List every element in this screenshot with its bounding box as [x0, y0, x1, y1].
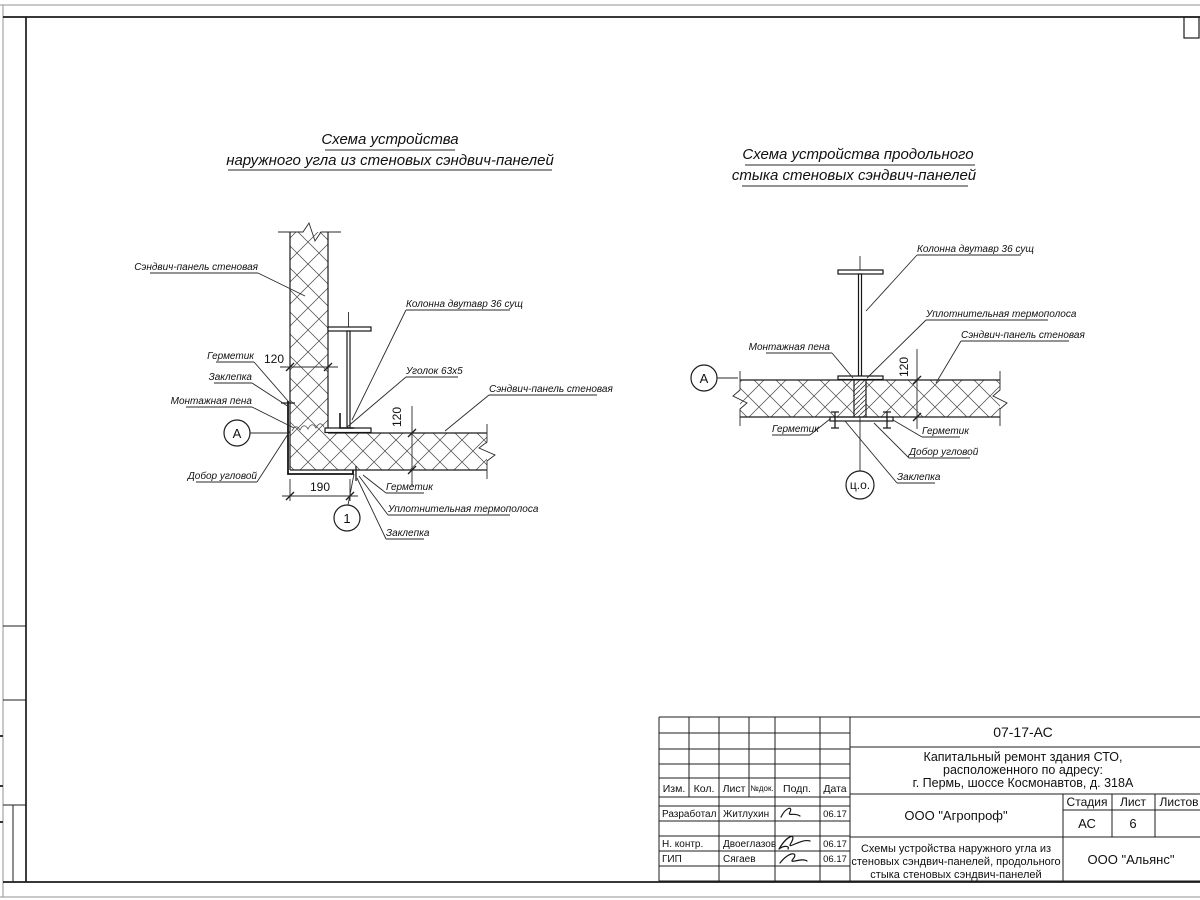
document-number: 07-17-АС	[993, 724, 1053, 740]
right-diagram-title-line1: Схема устройства продольного	[742, 146, 973, 163]
row-name-ncontrol: Двоеглазов	[723, 839, 776, 850]
drawing-name-line2: стеновых сэндвич-панелей, продольного	[851, 856, 1060, 868]
row-date-gip: 06.17	[823, 854, 847, 865]
center-axis-marker: ц.о.	[850, 478, 870, 492]
sandwich-panel-run	[740, 380, 1000, 417]
col-header-ndok: №док.	[750, 784, 773, 793]
label-rivet: Заклепка	[897, 472, 941, 483]
label-angle: Уголок 63х5	[405, 366, 463, 377]
drawing-name-line3: стыка стеновых сэндвич-панелей	[870, 869, 1041, 881]
node-marker-a: А	[700, 371, 709, 386]
label-sealant-bottom: Герметик	[386, 482, 434, 493]
dim-120-vertical: 120	[897, 357, 911, 377]
i-beam-column	[325, 312, 371, 433]
row-date-ncontrol: 06.17	[823, 839, 847, 850]
label-rivet-top: Заклепка	[209, 372, 253, 383]
left-diagram: Схема устройства наружного угла из стено…	[134, 131, 613, 539]
col-header-kol: Кол.	[694, 783, 715, 795]
node-marker-a: А	[233, 426, 242, 441]
dim-120-horizontal: 120	[264, 352, 284, 366]
label-thermo-strip: Уплотнительная термополоса	[925, 309, 1077, 320]
label-mounting-foam: Монтажная пена	[171, 396, 253, 407]
label-thermo-strip: Уплотнительная термополоса	[387, 504, 539, 515]
detail-marker-1: 1	[343, 511, 350, 526]
dim-120-vertical: 120	[390, 407, 404, 427]
label-sandwich-panel-top: Сэндвич-панель стеновая	[134, 262, 258, 273]
row-name-developer: Житлухин	[723, 809, 769, 820]
drawing-sheet: Схема устройства наружного угла из стено…	[0, 0, 1200, 900]
label-corner-trim: Добор угловой	[187, 470, 258, 482]
right-diagram: Схема устройства продольного стыка стено…	[691, 146, 1085, 499]
label-sealant-top: Герметик	[207, 351, 255, 362]
label-rivet-bottom: Заклепка	[386, 528, 430, 539]
blueprint-canvas: Схема устройства наружного угла из стено…	[0, 0, 1200, 900]
signature-developer	[781, 808, 800, 817]
label-sandwich-panel-right: Сэндвич-панель стеновая	[489, 384, 613, 395]
right-diagram-title-line2: стыка стеновых сэндвич-панелей	[732, 167, 977, 184]
left-diagram-title-line1: Схема устройства	[321, 131, 458, 148]
label-corner-trim: Добор угловой	[908, 446, 979, 458]
label-column: Колонна двутавр 36 сущ	[406, 299, 523, 310]
label-sealant-left: Герметик	[772, 424, 820, 435]
joint-foam-fill	[854, 380, 866, 417]
drawing-name-line1: Схемы устройства наружного угла из	[861, 843, 1051, 855]
row-date-developer: 06.17	[823, 809, 847, 820]
left-diagram-title-line2: наружного угла из стеновых сэндвич-панел…	[226, 152, 554, 169]
designer-org: ООО "Агропроф"	[904, 808, 1008, 823]
corner-filing-box	[1184, 17, 1199, 38]
sheets-label: Листов	[1160, 795, 1199, 809]
stage-label: Стадия	[1067, 795, 1108, 809]
row-role-gip: ГИП	[662, 854, 682, 865]
row-name-gip: Сягаев	[723, 854, 756, 865]
label-sandwich-panel: Сэндвич-панель стеновая	[961, 330, 1085, 341]
signature-ncontrol	[779, 836, 810, 849]
dim-190: 190	[310, 480, 330, 494]
title-block: Изм. Кол. Лист №док. Подп. Дата Разработ…	[659, 717, 1200, 881]
project-name-line2: расположенного по адресу:	[943, 763, 1103, 777]
row-role-developer: Разработал	[662, 808, 717, 820]
stage-value: АС	[1078, 816, 1096, 831]
col-header-list: Лист	[723, 783, 746, 795]
label-column: Колонна двутавр 36 сущ	[917, 244, 1034, 255]
vertical-sandwich-panel	[290, 232, 328, 433]
horizontal-sandwich-panel	[290, 433, 487, 470]
signature-gip	[780, 854, 807, 863]
sheet-value: 6	[1129, 816, 1136, 831]
label-mounting-foam: Монтажная пена	[749, 342, 831, 353]
i-beam-column	[838, 256, 883, 471]
label-sealant-right: Герметик	[922, 426, 970, 437]
sheet-label: Лист	[1120, 795, 1147, 809]
col-header-izm: Изм.	[663, 783, 686, 795]
project-name-line1: Капитальный ремонт здания СТО,	[924, 750, 1123, 764]
col-header-data: Дата	[823, 783, 846, 795]
row-role-ncontrol: Н. контр.	[662, 839, 703, 850]
project-name-line3: г. Пермь, шоссе Космонавтов, д. 318А	[913, 776, 1134, 790]
col-header-podp: Подп.	[783, 783, 811, 795]
client-org: ООО "Альянс"	[1088, 852, 1175, 867]
